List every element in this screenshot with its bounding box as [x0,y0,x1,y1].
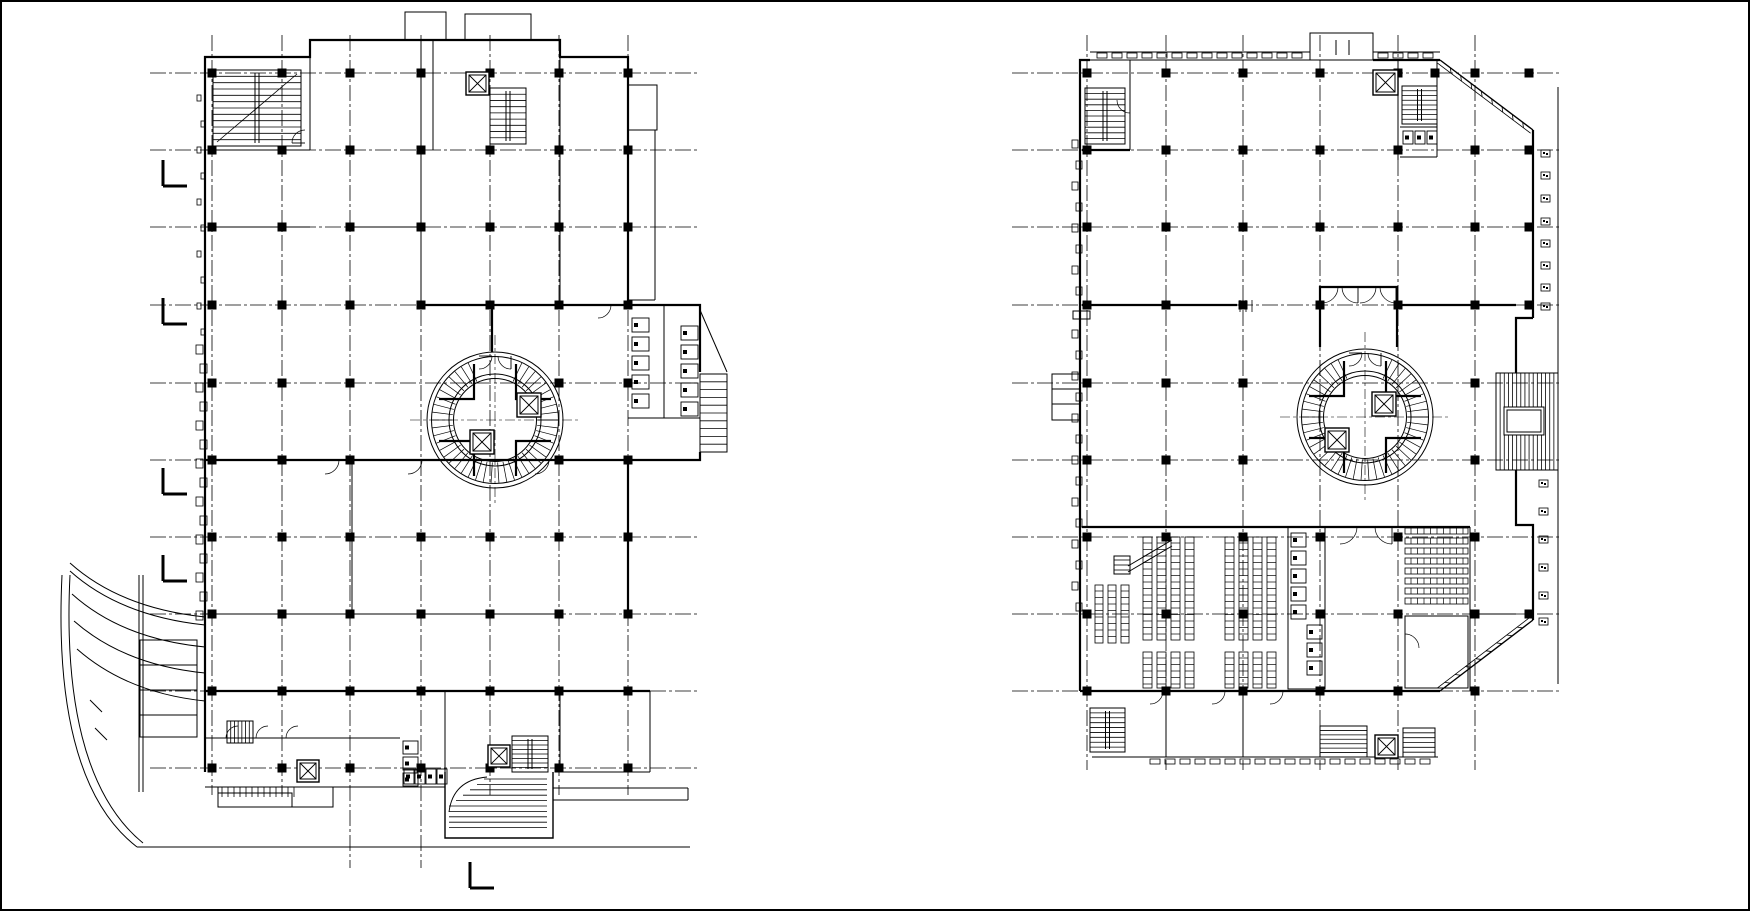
cad-drawing-page [0,0,1750,911]
floor-plan-canvas [0,0,1750,911]
